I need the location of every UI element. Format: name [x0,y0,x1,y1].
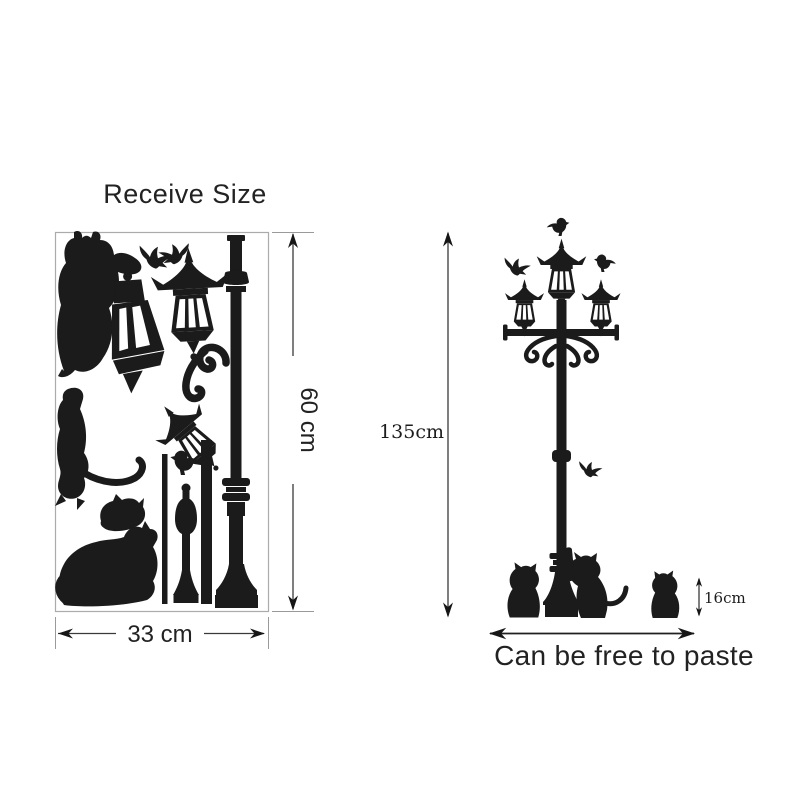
rod-silhouette [201,440,212,604]
paste-caption: Can be free to paste [494,640,754,671]
street-lantern-silhouette [505,279,544,336]
cat-height-dimension: 16cm [696,578,746,617]
sheet-height-label: 60 cm [295,387,322,452]
sheet-width-label: 33 cm [127,621,192,648]
paste-caption-group: Can be free to paste [489,628,754,671]
bird-silhouette [579,461,602,477]
bird-silhouette [505,258,531,276]
cat-height-label: 16cm [704,589,746,607]
cat-silhouette [651,570,690,618]
rod-silhouette [162,454,168,604]
cat-silhouette [100,494,145,531]
street-lantern-silhouette [142,388,239,488]
bird-silhouette [547,218,570,236]
product-screenshot: Receive Size [0,0,800,800]
sheet-height-dimension: 60 cm [272,233,322,612]
assembled-preview-panel: 135cm [379,218,754,671]
sticker-sheet-contents [55,231,258,608]
baluster-silhouette [173,484,199,604]
cat-silhouette [495,562,540,617]
sheet-width-dimension: 33 cm [56,617,269,649]
bird-silhouette [594,255,616,272]
total-height-dimension: 135cm [379,232,453,618]
wall-sticker-illustration: Receive Size [0,0,800,800]
total-height-label: 135cm [379,421,444,443]
street-lamp-silhouette [503,218,621,617]
cat-silhouette [58,521,157,606]
sticker-sheet-panel: Receive Size [55,179,322,649]
street-lantern-silhouette [537,239,587,311]
cat-silhouette [55,388,142,510]
lamp-post-silhouette [215,235,258,608]
receive-size-title: Receive Size [103,179,267,209]
